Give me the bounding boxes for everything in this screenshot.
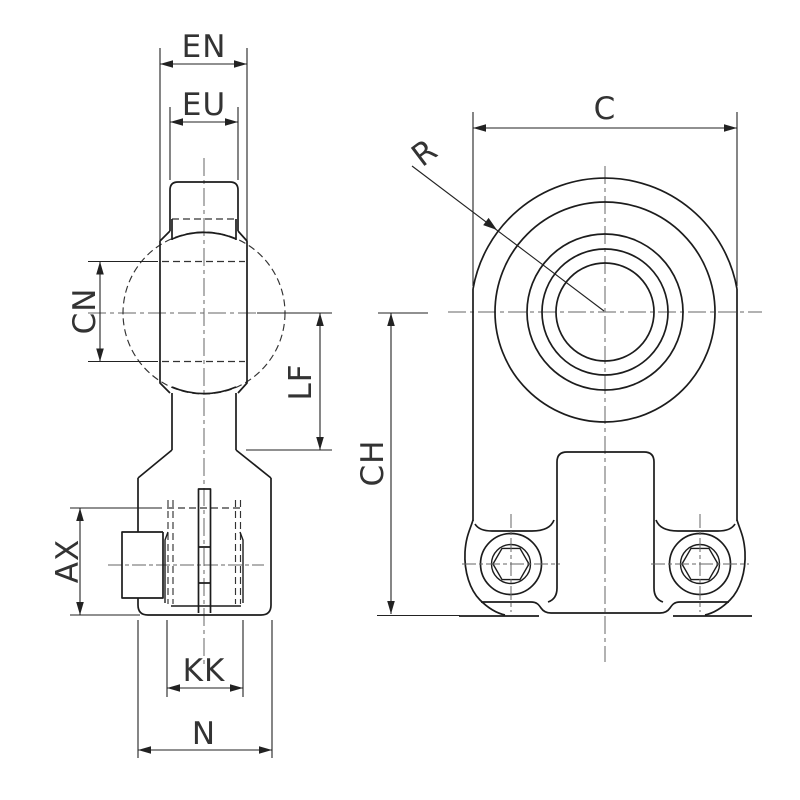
dimensions: EN EU C KK N CN LF AX CH R <box>50 29 737 758</box>
technical-drawing-page: EN EU C KK N CN LF AX CH R <box>0 0 800 800</box>
right-lug-outline <box>705 520 745 615</box>
radius-leader-line <box>412 166 604 311</box>
drawing-canvas: EN EU C KK N CN LF AX CH R <box>0 0 800 800</box>
extension-lines <box>70 48 737 758</box>
dim-label-eu: EU <box>182 87 226 123</box>
left-lug-outline <box>465 520 505 615</box>
arrowheads <box>76 60 737 754</box>
dim-label-c: C <box>594 91 617 127</box>
left-lug-top-edge <box>475 520 554 531</box>
dim-label-kk: KK <box>183 653 226 689</box>
right-view-front <box>448 166 762 662</box>
dim-label-r: R <box>405 132 445 174</box>
dim-label-ch: CH <box>355 440 391 487</box>
dim-label-n: N <box>192 716 216 752</box>
dim-label-en: EN <box>182 29 227 65</box>
dim-label-cn: CN <box>67 288 103 335</box>
dim-label-lf: LF <box>283 363 319 400</box>
left-view-side <box>88 158 285 664</box>
dim-label-ax: AX <box>50 539 86 583</box>
right-lug-top-edge <box>656 520 735 531</box>
